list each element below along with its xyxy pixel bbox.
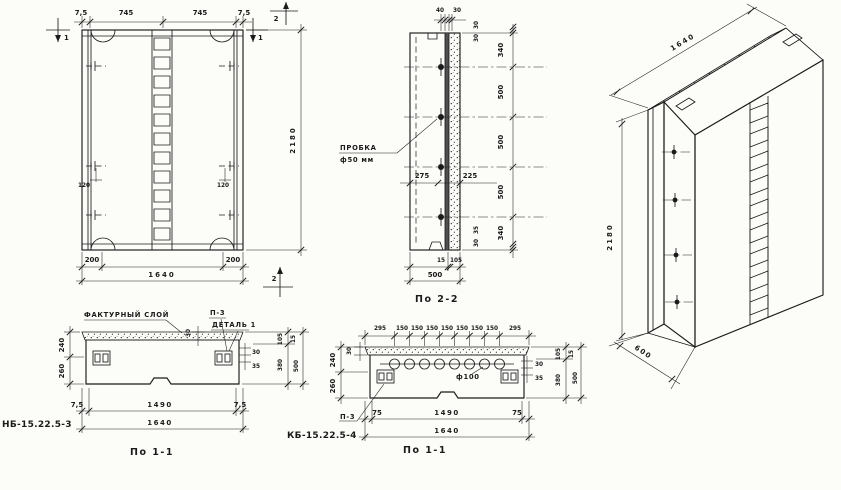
anchor-notch xyxy=(676,98,695,110)
sec22-right-chain: 30 30 340 500 500 500 340 35 30 xyxy=(462,21,518,258)
dim-1640: 1640 xyxy=(434,427,459,435)
dim-30-right: 30 xyxy=(535,362,543,368)
callout-facing-layer: ФАКТУРНЫЙ СЛОЙ xyxy=(84,310,169,319)
dim-745-right: 745 xyxy=(193,9,208,17)
dim-225: 225 xyxy=(463,172,478,180)
section-mark-1-left: 1 xyxy=(64,34,69,42)
side-anchors: 120 120 xyxy=(78,61,239,220)
dim-2180: 2180 xyxy=(289,126,297,153)
dim-30-facing: 30 xyxy=(186,329,192,337)
dim-75-right: 75 xyxy=(512,409,522,417)
dim-260: 260 xyxy=(329,379,337,394)
secA-right-small-dims: 30 35 xyxy=(239,343,260,370)
iso-plugs xyxy=(662,145,693,309)
dim-150: 150 xyxy=(441,326,453,332)
dim-295-left: 295 xyxy=(374,326,386,332)
dim-75-left: 7,5 xyxy=(71,401,84,409)
dim-75-left: 7,5 xyxy=(75,9,88,17)
secA-left-chain: 240 260 xyxy=(58,326,84,390)
sec22-bottom-dims: 15 105 500 xyxy=(404,252,466,285)
dim-150: 150 xyxy=(426,326,438,332)
sec22-top-dims: 40 30 xyxy=(434,8,466,31)
facing-layer-hatch xyxy=(365,347,529,355)
dim-380: 380 xyxy=(556,374,562,386)
iso-dims: 1640 2180 600 xyxy=(606,4,786,389)
front-height-dim: 2180 xyxy=(246,24,307,256)
section-1-1-left-title: По 1-1 xyxy=(130,447,174,458)
dim-240: 240 xyxy=(329,353,337,368)
dim-15: 15 xyxy=(291,335,297,343)
callout-p3: П-3 xyxy=(210,309,225,317)
dim-75-right: 7,5 xyxy=(238,9,251,17)
embedded-channel xyxy=(93,351,232,365)
dim-150: 150 xyxy=(396,326,408,332)
dim-105: 105 xyxy=(556,348,562,360)
dim-500: 500 xyxy=(573,372,579,384)
secA-right-chain: 105 15 380 500 xyxy=(242,327,309,390)
dim-200-left: 200 xyxy=(85,256,100,264)
chain-500b: 500 xyxy=(497,135,505,150)
dim-150: 150 xyxy=(486,326,498,332)
hole-row xyxy=(380,359,514,369)
dim-150: 150 xyxy=(471,326,483,332)
panel-mark-kb: КБ-15.22.5-4 xyxy=(287,431,357,441)
dim-15: 15 xyxy=(437,258,445,264)
chain-340-top: 340 xyxy=(497,43,505,58)
chain-top-30b: 30 xyxy=(474,34,480,42)
dim-1490: 1490 xyxy=(434,409,459,417)
facing-layer-hatch xyxy=(82,332,243,340)
callout-detail-1: ДЕТАЛЬ 1 xyxy=(212,321,256,329)
section-mark-2-bottom: 2 xyxy=(272,275,277,283)
secB-right-chain: 105 15 380 500 xyxy=(526,342,587,404)
section-1-1-mid-title: По 1-1 xyxy=(403,445,447,456)
secB-facing-dim: 30 xyxy=(347,342,367,361)
chain-bottom-35: 35 xyxy=(474,226,480,234)
secB-bottom-dims: 75 1490 75 1640 xyxy=(359,401,535,441)
chain-top-30a: 30 xyxy=(474,21,480,29)
dim-40: 40 xyxy=(436,8,444,14)
dim-1640: 1640 xyxy=(148,271,175,279)
plugs xyxy=(404,58,547,226)
panel-mark-nb: НБ-15.22.5-3 xyxy=(2,420,72,430)
dim-35-right: 35 xyxy=(535,376,543,382)
section-2-2-view: ПРОБКА ф50 мм 40 30 275 225 xyxy=(339,8,547,305)
dim-1490: 1490 xyxy=(147,401,172,409)
drawing-canvas: 120 120 7,5 745 745 7,5 1 1 2 xyxy=(0,0,841,490)
embedded-channel xyxy=(377,370,518,383)
dim-240: 240 xyxy=(58,338,66,353)
front-bottom-dims: 200 200 1640 xyxy=(76,252,249,285)
callout-probka: ПРОБКА xyxy=(340,144,377,152)
key-ladder xyxy=(154,38,170,240)
secB-top-dims: 295 150 150 150 150 150 150 150 295 xyxy=(358,326,536,346)
dim-275: 275 xyxy=(415,172,430,180)
plug-callout: ПРОБКА ф50 мм xyxy=(339,119,437,164)
dim-1640: 1640 xyxy=(147,419,172,427)
iso-dim-2180: 2180 xyxy=(606,223,614,250)
iso-key-ladder xyxy=(750,103,768,315)
dim-75-left: 75 xyxy=(372,409,382,417)
engineering-drawing-sheet: 120 120 7,5 745 745 7,5 1 1 2 xyxy=(0,0,841,490)
dim-15: 15 xyxy=(569,350,575,358)
dim-295-right: 295 xyxy=(509,326,521,332)
hole-dia-label: ф100 xyxy=(456,373,480,381)
secA-bottom-dims: 7,5 1490 7,5 1640 xyxy=(71,388,249,433)
section-2-2-title: По 2-2 xyxy=(415,294,459,305)
facing-layer-hatch xyxy=(449,33,460,250)
isometric-view: 1640 2180 600 xyxy=(606,4,823,389)
dim-35-right: 35 xyxy=(252,364,260,370)
dim-745-left: 745 xyxy=(119,9,134,17)
dim-105: 105 xyxy=(278,333,284,345)
iso-dim-1640: 1640 xyxy=(669,32,697,53)
front-elevation-view: 120 120 7,5 745 745 7,5 1 1 2 xyxy=(46,2,307,297)
callout-f50: ф50 мм xyxy=(340,156,374,164)
chain-bottom-30: 30 xyxy=(474,239,480,247)
chain-340-bottom: 340 xyxy=(497,226,505,241)
iso-dim-600: 600 xyxy=(633,344,653,361)
callout-p3: П-3 xyxy=(340,413,355,421)
dim-120-left: 120 xyxy=(78,183,90,189)
dim-75-right: 7,5 xyxy=(234,401,247,409)
chain-500a: 500 xyxy=(497,85,505,100)
section-1-1-left-view: ФАКТУРНЫЙ СЛОЙ П-3 ДЕТАЛЬ 1 30 240 260 3… xyxy=(2,309,309,458)
dim-200-right: 200 xyxy=(226,256,241,264)
section-1-1-mid-view: 295 150 150 150 150 150 150 150 295 30 2… xyxy=(287,326,587,456)
anchor-notch xyxy=(783,34,802,46)
dim-500: 500 xyxy=(428,271,443,279)
dim-30-facing: 30 xyxy=(347,347,353,355)
front-top-dims: 7,5 745 745 7,5 xyxy=(74,9,252,28)
dim-30: 30 xyxy=(453,8,461,14)
dim-260: 260 xyxy=(58,364,66,379)
dim-120-right: 120 xyxy=(217,183,229,189)
section-mark-2-top: 2 xyxy=(274,15,279,23)
chain-500c: 500 xyxy=(497,185,505,200)
dim-105: 105 xyxy=(450,258,462,264)
section-mark-1-right: 1 xyxy=(258,34,263,42)
dim-30-right: 30 xyxy=(252,350,260,356)
dim-150: 150 xyxy=(411,326,423,332)
dim-150: 150 xyxy=(456,326,468,332)
dim-500: 500 xyxy=(294,360,300,372)
dim-380: 380 xyxy=(278,359,284,371)
